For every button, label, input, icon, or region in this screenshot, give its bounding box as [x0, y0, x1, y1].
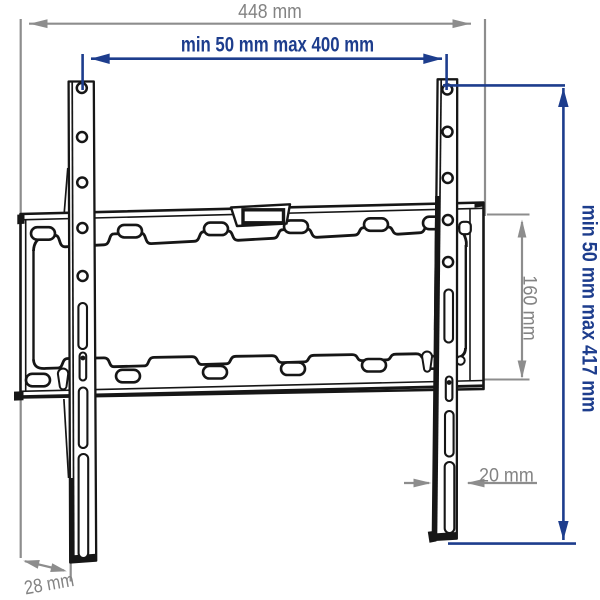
svg-text:min 50 mm max 400 mm: min 50 mm max 400 mm — [181, 34, 374, 57]
svg-text:min 50 mm max 417 mm: min 50 mm max 417 mm — [577, 205, 600, 413]
svg-text:160 mm: 160 mm — [519, 275, 541, 340]
svg-text:448 mm: 448 mm — [238, 1, 302, 24]
svg-text:20 mm: 20 mm — [479, 464, 534, 486]
